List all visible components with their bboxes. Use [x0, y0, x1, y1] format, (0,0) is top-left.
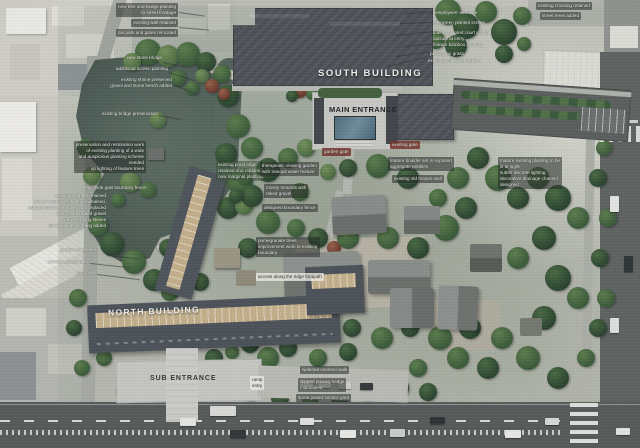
main-road-south	[0, 402, 640, 448]
tree-canopy	[447, 347, 469, 369]
city-building	[0, 102, 36, 152]
tree-canopy	[66, 320, 82, 336]
annotation-label: existing crossing retained	[536, 2, 592, 10]
annotation-label: rampentry	[250, 376, 264, 390]
temple-roof	[404, 206, 440, 234]
tree-canopy	[241, 185, 263, 207]
annotation-label: evergreen planted screen	[433, 20, 485, 26]
annotation-label: tea house	[76, 270, 96, 276]
roof-dash-marks	[97, 333, 333, 345]
annotation-label: stone paved service yard	[296, 394, 351, 402]
tree-canopy	[513, 7, 531, 25]
city-building	[610, 26, 638, 48]
city-building	[6, 8, 46, 34]
tree-canopy	[407, 237, 429, 259]
tree-canopy	[429, 189, 447, 207]
annotation-label: existing old feature wall	[392, 175, 444, 183]
tea-house-roof	[236, 270, 256, 286]
annotation-label: mature existing planting to belit at nig…	[498, 157, 562, 189]
sub-entrance-walk	[166, 348, 198, 422]
annotation-label: designed boundary fence	[262, 204, 318, 212]
tree-canopy	[371, 327, 393, 349]
car	[624, 256, 633, 272]
tree-canopy	[409, 359, 427, 377]
lane-dashes	[0, 420, 560, 422]
car	[545, 418, 559, 425]
tree-canopy	[419, 383, 437, 401]
tree-canopy	[241, 137, 263, 159]
tree-canopy	[218, 88, 230, 100]
entrance-water-feature	[334, 116, 376, 140]
road-edge-line	[0, 404, 640, 405]
annotation-label: parking on grass	[430, 51, 464, 57]
tree-canopy	[567, 287, 589, 309]
car	[610, 196, 619, 212]
tree-canopy	[589, 319, 607, 337]
tree-canopy	[517, 37, 531, 51]
tree-canopy	[597, 289, 615, 307]
annotation-label: new shide gaki boundary fence	[83, 185, 146, 191]
annotation-label: employees' entrance	[435, 10, 477, 16]
tree-canopy	[226, 114, 250, 138]
car	[616, 428, 630, 435]
tree-canopy	[477, 357, 499, 379]
city-building	[0, 352, 36, 400]
tree-canopy	[596, 140, 612, 156]
hedge-row	[460, 104, 580, 120]
tree-canopy	[111, 193, 125, 207]
annotation-label: mossy mounds withraked gravel	[264, 184, 308, 198]
annotation-label: clipped privacy hedgemaintained	[298, 378, 346, 392]
car	[360, 383, 373, 390]
parking-bays	[581, 107, 627, 134]
south-building-east-roof	[396, 94, 454, 140]
temple-roof	[437, 285, 479, 330]
annotation-label: additional screen planting	[116, 66, 168, 72]
annotation-label: preservation and restoration workof exis…	[74, 141, 146, 173]
annotation-label: existing gate	[390, 141, 420, 149]
annotation-label: existing wall retained	[131, 19, 178, 27]
annotation-label: existing pond edgeretained and repairedn…	[216, 161, 265, 181]
annotation-label: service access path	[48, 259, 88, 265]
car	[300, 418, 314, 425]
tree-canopy	[320, 164, 336, 180]
tree-canopy	[339, 159, 357, 177]
tree-canopy	[495, 45, 513, 63]
tree-canopy	[286, 90, 298, 102]
car	[610, 318, 619, 333]
annotation-label: pomegranate treesimprovement work to exi…	[256, 237, 320, 257]
car	[505, 430, 521, 438]
annotation-label: existing wall water feature	[428, 58, 481, 64]
tree-canopy	[455, 197, 477, 219]
tree-canopy	[589, 169, 607, 187]
annotation-label: car park and gates relocated	[116, 29, 178, 37]
main-entrance-label: MAIN ENTRANCE	[329, 105, 397, 114]
tree-canopy	[491, 19, 517, 45]
temple-roof	[331, 195, 387, 236]
entrance-pier	[386, 96, 398, 144]
car	[180, 418, 196, 426]
annotation-label: new stone bridge	[127, 55, 162, 61]
tree-canopy	[366, 154, 390, 178]
truck	[210, 406, 236, 416]
entrance-hedge	[318, 88, 382, 98]
annotation-label: existing bridge preservation	[102, 111, 158, 117]
temple-roof	[470, 244, 502, 272]
tree-canopy	[256, 210, 280, 234]
annotation-label: street trees added	[540, 12, 581, 20]
tree-canopy	[545, 185, 571, 211]
annotation-label: therapeutic viewing gardenwith tranquil …	[260, 162, 319, 176]
tree-canopy	[74, 360, 90, 376]
tree-canopy	[69, 289, 87, 307]
car	[230, 430, 246, 438]
entrance-steps	[336, 140, 372, 147]
tree-canopy	[567, 207, 589, 229]
car	[430, 417, 445, 424]
tree-canopy	[339, 343, 357, 361]
city-building	[10, 44, 40, 80]
annotation-label: interior planted court visibleoutside at…	[433, 30, 489, 42]
tree-canopy	[238, 238, 258, 258]
annotation-label: new tree and hedge plantingto street fro…	[116, 3, 178, 17]
annotation-label: existing footpath retainedline of existi…	[28, 193, 106, 229]
tree-canopy	[309, 349, 327, 367]
tree-canopy	[467, 147, 489, 169]
tree-canopy	[547, 367, 569, 389]
tree-canopy	[545, 265, 571, 291]
tree-canopy	[532, 226, 556, 250]
road-tick-markings	[0, 430, 560, 435]
entrance-pier	[314, 98, 324, 144]
south-building-label: SOUTH BUILDING	[318, 68, 422, 79]
sub-entrance-label: SUB ENTRANCE	[150, 375, 216, 382]
tree-canopy	[205, 79, 219, 93]
rooftop-plant	[250, 14, 310, 18]
tree-canopy	[100, 232, 124, 256]
tree-canopy	[577, 349, 595, 367]
annotation-label: access along the ridge footpath	[256, 273, 324, 281]
annotation-label: garden gate	[322, 148, 351, 156]
tree-canopy	[229, 189, 243, 203]
site-plan: SOUTH BUILDING MAIN ENTRANCE NORTH BUILD…	[0, 0, 640, 448]
tree-canopy	[516, 346, 540, 370]
tree-canopy	[343, 319, 361, 337]
tree-canopy	[122, 250, 146, 274]
annotation-label: feature bamboo planting	[433, 42, 483, 48]
zebra-crossing-south	[570, 403, 598, 448]
tree-canopy	[591, 249, 609, 267]
rooftop-plant	[330, 22, 400, 26]
annotation-label: existing shrine preservedgravel and ston…	[110, 77, 172, 89]
annotation-label: feature boulder set in exposedaggregate …	[388, 157, 454, 171]
tree-canopy	[491, 327, 513, 349]
city-building	[6, 308, 46, 336]
tea-house-roof	[214, 248, 240, 268]
tree-canopy	[287, 219, 305, 237]
shrine-building	[148, 148, 164, 160]
car	[340, 430, 356, 438]
tree-canopy	[507, 247, 529, 269]
garden-hut-roof	[520, 318, 542, 336]
car	[390, 429, 405, 437]
annotation-label: widened covered walk	[300, 366, 349, 374]
annotation-label: garden tea house	[60, 247, 96, 253]
tree-canopy	[507, 187, 529, 209]
temple-roof	[390, 288, 434, 328]
